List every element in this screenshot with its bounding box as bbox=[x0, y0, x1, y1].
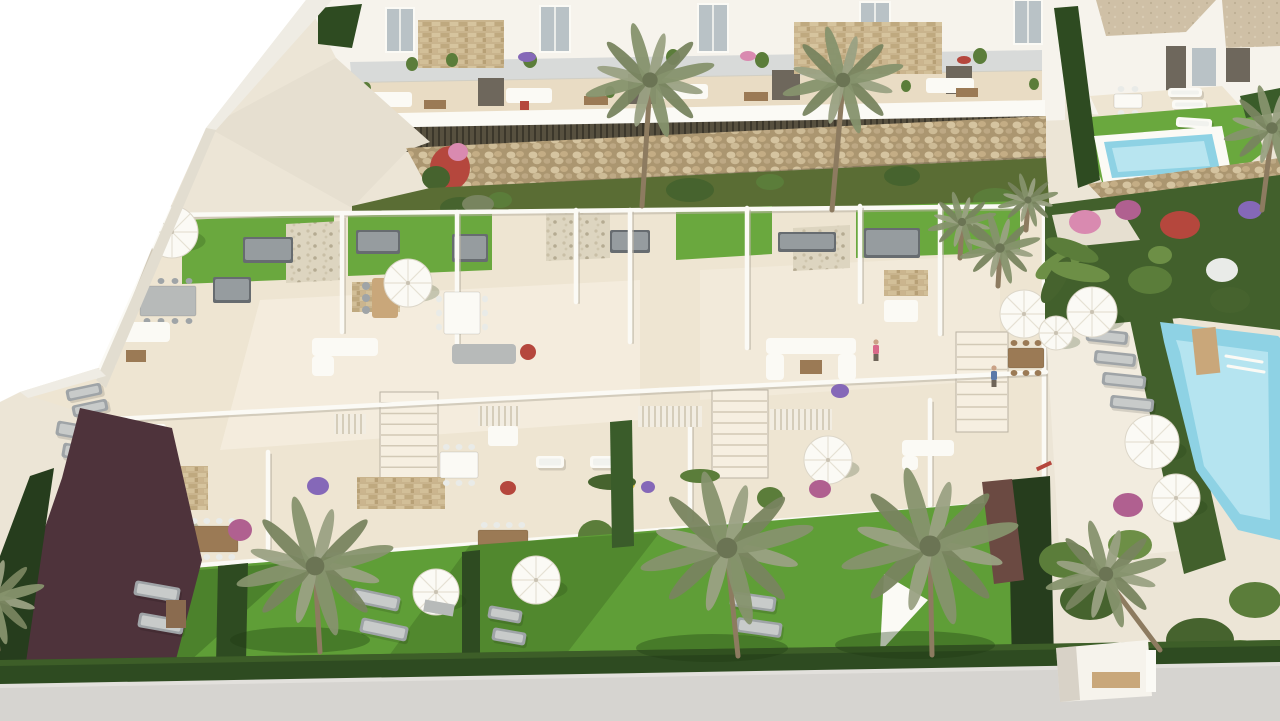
stone-chimney bbox=[884, 270, 928, 296]
garden-hedge bbox=[462, 550, 480, 660]
purple-planter bbox=[307, 477, 329, 495]
roof-pergola-box bbox=[864, 228, 920, 258]
pink-bush bbox=[228, 519, 252, 541]
white-bush bbox=[1206, 258, 1238, 282]
aerial-3d-render bbox=[0, 0, 1280, 721]
garden-hedge bbox=[610, 420, 634, 548]
balcony-table bbox=[744, 92, 768, 101]
red-flowers bbox=[957, 56, 971, 64]
balcony-table bbox=[956, 88, 978, 97]
shrub bbox=[884, 166, 920, 186]
patio-lounger bbox=[536, 456, 566, 471]
roof-sofa bbox=[312, 338, 378, 356]
planter-red bbox=[500, 481, 516, 495]
parapet-wall bbox=[268, 452, 270, 550]
roof-pergola-box bbox=[213, 277, 251, 303]
pink-bush bbox=[1069, 210, 1101, 234]
planter-purple bbox=[641, 481, 655, 493]
roof-dining-set bbox=[1008, 340, 1044, 376]
villa-window bbox=[1226, 48, 1250, 82]
person-walking bbox=[873, 339, 879, 361]
person-on-stairs bbox=[991, 365, 997, 387]
patio-sofa bbox=[902, 440, 954, 456]
pool-bench bbox=[1192, 327, 1221, 375]
villa-lounger bbox=[1168, 88, 1204, 100]
roof-pergola-box bbox=[778, 232, 836, 252]
bar-stool bbox=[362, 294, 370, 302]
pink-flowers bbox=[740, 51, 756, 61]
red-bush bbox=[1160, 211, 1200, 239]
slat-canopy bbox=[770, 409, 832, 430]
parapet-wall bbox=[630, 210, 632, 344]
scene-layers bbox=[0, 0, 1280, 721]
purple-bush bbox=[1238, 201, 1262, 219]
villa-window bbox=[1192, 48, 1216, 86]
villa-window bbox=[1166, 46, 1186, 92]
plant bbox=[901, 80, 911, 92]
balcony-table bbox=[584, 96, 608, 105]
green-mound bbox=[1210, 287, 1250, 313]
palm-shadow bbox=[835, 631, 995, 659]
patio-sofa bbox=[902, 456, 918, 470]
pink-planter bbox=[809, 480, 831, 498]
parapet-wall bbox=[576, 210, 578, 304]
stone-clad-wall bbox=[418, 20, 504, 68]
pool-house-bench bbox=[1092, 672, 1140, 688]
window bbox=[386, 8, 414, 52]
villa-roof bbox=[1222, 0, 1280, 48]
parapet-wall bbox=[860, 206, 862, 304]
architectural-render-stage bbox=[0, 0, 1280, 721]
plant bbox=[973, 48, 987, 64]
window bbox=[1014, 0, 1042, 44]
roof-pergola-box bbox=[243, 237, 293, 263]
roof-lawn-patch bbox=[676, 206, 772, 260]
staircase bbox=[712, 390, 768, 478]
bougainvillea-pink bbox=[448, 143, 468, 161]
green-mound bbox=[1128, 266, 1172, 294]
roof-sofa bbox=[452, 344, 516, 364]
pink-bush bbox=[1113, 493, 1143, 517]
coffee-table bbox=[800, 360, 822, 374]
agave bbox=[1148, 246, 1172, 264]
purple-planter bbox=[831, 384, 849, 398]
coffee-table bbox=[126, 350, 146, 362]
plant bbox=[1029, 78, 1039, 90]
roof-sofa bbox=[312, 356, 334, 376]
plant bbox=[446, 53, 458, 67]
bar-stool bbox=[362, 282, 370, 290]
window bbox=[540, 6, 570, 52]
green-mound bbox=[1229, 582, 1280, 618]
parapet-wall bbox=[457, 212, 459, 358]
shrub bbox=[756, 174, 784, 190]
planter-red bbox=[520, 344, 536, 360]
palm-shadow bbox=[230, 627, 370, 653]
plant bbox=[406, 57, 418, 71]
bar-stool bbox=[362, 306, 370, 314]
slat-canopy bbox=[478, 406, 520, 426]
slat-canopy bbox=[638, 406, 702, 427]
balcony-sofa bbox=[506, 88, 552, 103]
balcony-table bbox=[424, 100, 446, 109]
parapet-wall bbox=[342, 216, 344, 334]
bougainvillea-leaf bbox=[422, 166, 450, 190]
roof-daybed bbox=[884, 300, 918, 322]
roof-sofa bbox=[766, 354, 784, 380]
red-chair bbox=[520, 101, 529, 110]
pink-bush bbox=[1115, 200, 1141, 220]
roof-sofa bbox=[766, 338, 856, 354]
pool-house-shadow bbox=[1056, 646, 1080, 702]
shrub bbox=[666, 178, 714, 202]
plant bbox=[755, 52, 769, 68]
stone-privacy-wall bbox=[357, 477, 445, 509]
patio-daybed bbox=[488, 426, 518, 446]
slat-canopy bbox=[334, 414, 366, 434]
staircase bbox=[956, 332, 1008, 432]
pool-house-wall bbox=[1146, 650, 1156, 692]
roof-sofa bbox=[838, 354, 856, 380]
purple-flowers bbox=[518, 52, 536, 62]
lounger-mat bbox=[166, 600, 186, 628]
roof-pergola-box bbox=[356, 230, 400, 254]
gravel-patch bbox=[286, 221, 342, 283]
planter-hedge bbox=[680, 469, 720, 483]
window bbox=[698, 4, 728, 52]
palm-shadow bbox=[636, 634, 788, 662]
parapet-wall bbox=[747, 208, 749, 350]
roof-dining-set bbox=[436, 292, 488, 334]
door-opening bbox=[478, 78, 504, 106]
